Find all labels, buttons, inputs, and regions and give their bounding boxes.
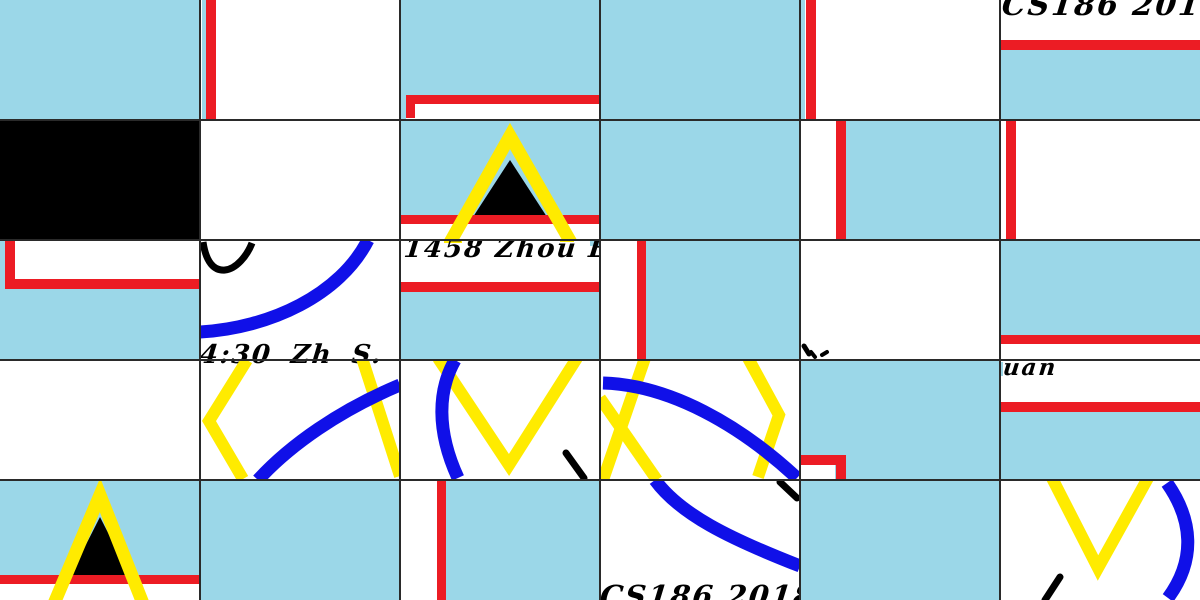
white-area	[800, 465, 835, 480]
red-stripe	[1000, 335, 1200, 344]
red-vertical-bar	[206, 0, 216, 120]
red-stripe	[5, 279, 200, 289]
tile-r4-c3[interactable]: CS186 201801	[600, 480, 800, 600]
tile-r1-c3[interactable]	[600, 120, 800, 240]
grid-line	[399, 0, 401, 600]
tile-r2-c2[interactable]: 1458 Zhou EnX	[400, 240, 600, 360]
red-corner-bar	[406, 95, 415, 118]
tile-r1-c1[interactable]	[200, 120, 400, 240]
blue-arc	[1167, 483, 1188, 598]
red-stripe	[1000, 402, 1200, 412]
grid-line	[0, 479, 1200, 481]
grid-line	[999, 0, 1001, 600]
tile-r4-c0[interactable]	[0, 480, 200, 600]
white-strip	[800, 120, 836, 240]
grid-line	[0, 239, 1200, 241]
white-strip	[400, 480, 437, 600]
grid-line	[199, 0, 201, 600]
tile-r4-c4[interactable]	[800, 480, 1000, 600]
blue-arc	[655, 480, 800, 566]
sky-area	[1000, 412, 1200, 480]
tile-r4-c5[interactable]	[1000, 480, 1200, 600]
tile-r3-c1[interactable]: 4:30 Zh S. Y	[200, 360, 400, 480]
grid-line	[0, 119, 1200, 121]
blue-arc	[200, 240, 368, 332]
handwriting-name-tail: uan	[1002, 360, 1059, 381]
ink-mark	[804, 346, 809, 354]
ink-stroke	[1045, 577, 1060, 600]
ink-mark	[822, 352, 827, 355]
tile-r1-c4[interactable]	[800, 120, 1000, 240]
ink-stroke	[566, 453, 584, 478]
red-vertical-bar	[1006, 120, 1016, 240]
ink-stroke	[780, 482, 797, 498]
handwriting-student-id-name: 1458 Zhou EnX	[402, 240, 600, 264]
red-stripe	[0, 575, 200, 584]
tile-r0-c3[interactable]	[600, 0, 800, 120]
handwriting-course-id: CS186 201801	[1000, 0, 1200, 23]
tile-r2-c5[interactable]	[1000, 240, 1200, 360]
tile-r0-c1[interactable]	[200, 0, 400, 120]
tile-r3-c5[interactable]: uan	[1000, 360, 1200, 480]
tile-r0-c0[interactable]	[0, 0, 200, 120]
red-vertical-bar	[836, 120, 846, 240]
tile-r2-c1[interactable]: 4:30 Zh S. Y	[200, 240, 400, 360]
tile-r1-c2[interactable]	[400, 120, 600, 240]
sky-area	[400, 292, 600, 360]
grid-line	[0, 359, 1200, 361]
white-strip	[0, 584, 200, 600]
red-vertical-bar	[806, 0, 816, 120]
red-stripe	[406, 95, 600, 104]
red-stripe	[400, 215, 600, 224]
tile-r0-c2[interactable]	[400, 0, 600, 120]
grid-line	[599, 0, 601, 600]
red-stripe	[1000, 40, 1200, 50]
tile-r3-c2[interactable]	[400, 360, 600, 480]
yellow-v-icon	[438, 360, 577, 465]
yellow-chevron-left-icon	[209, 360, 247, 479]
grid-line	[799, 0, 801, 600]
yellow-diagonal	[362, 360, 400, 476]
tile-r3-c4[interactable]	[800, 360, 1000, 480]
yellow-v-icon	[1052, 480, 1148, 568]
blue-arc	[258, 385, 400, 480]
ink-mark	[811, 352, 815, 357]
red-vertical-bar	[637, 240, 646, 360]
tile-r2-c0[interactable]	[0, 240, 200, 360]
tile-r1-c0[interactable]	[0, 120, 200, 240]
red-vertical-bar	[437, 480, 446, 600]
red-corner-bar	[5, 240, 15, 289]
black-arc	[203, 242, 252, 270]
tile-r2-c3[interactable]	[600, 240, 800, 360]
red-corner-bar	[836, 455, 846, 480]
tile-r3-c0[interactable]	[0, 360, 200, 480]
sky-area	[1000, 50, 1200, 120]
tile-r1-c5[interactable]	[1000, 120, 1200, 240]
tile-r2-c4[interactable]	[800, 240, 1000, 360]
white-strip	[406, 104, 600, 120]
tile-r0-c4[interactable]	[800, 0, 1000, 120]
puzzle-board: CS186 201801 4:30 Zh S. Y	[0, 0, 1200, 600]
tile-r4-c1[interactable]	[200, 480, 400, 600]
tile-r0-c5[interactable]: CS186 201801	[1000, 0, 1200, 120]
white-strip	[600, 240, 637, 360]
red-stripe	[400, 282, 600, 292]
white-strip	[1000, 344, 1200, 360]
white-area	[15, 240, 200, 279]
tile-r3-c3[interactable]	[600, 360, 800, 480]
tile-r4-c2[interactable]	[400, 480, 600, 600]
